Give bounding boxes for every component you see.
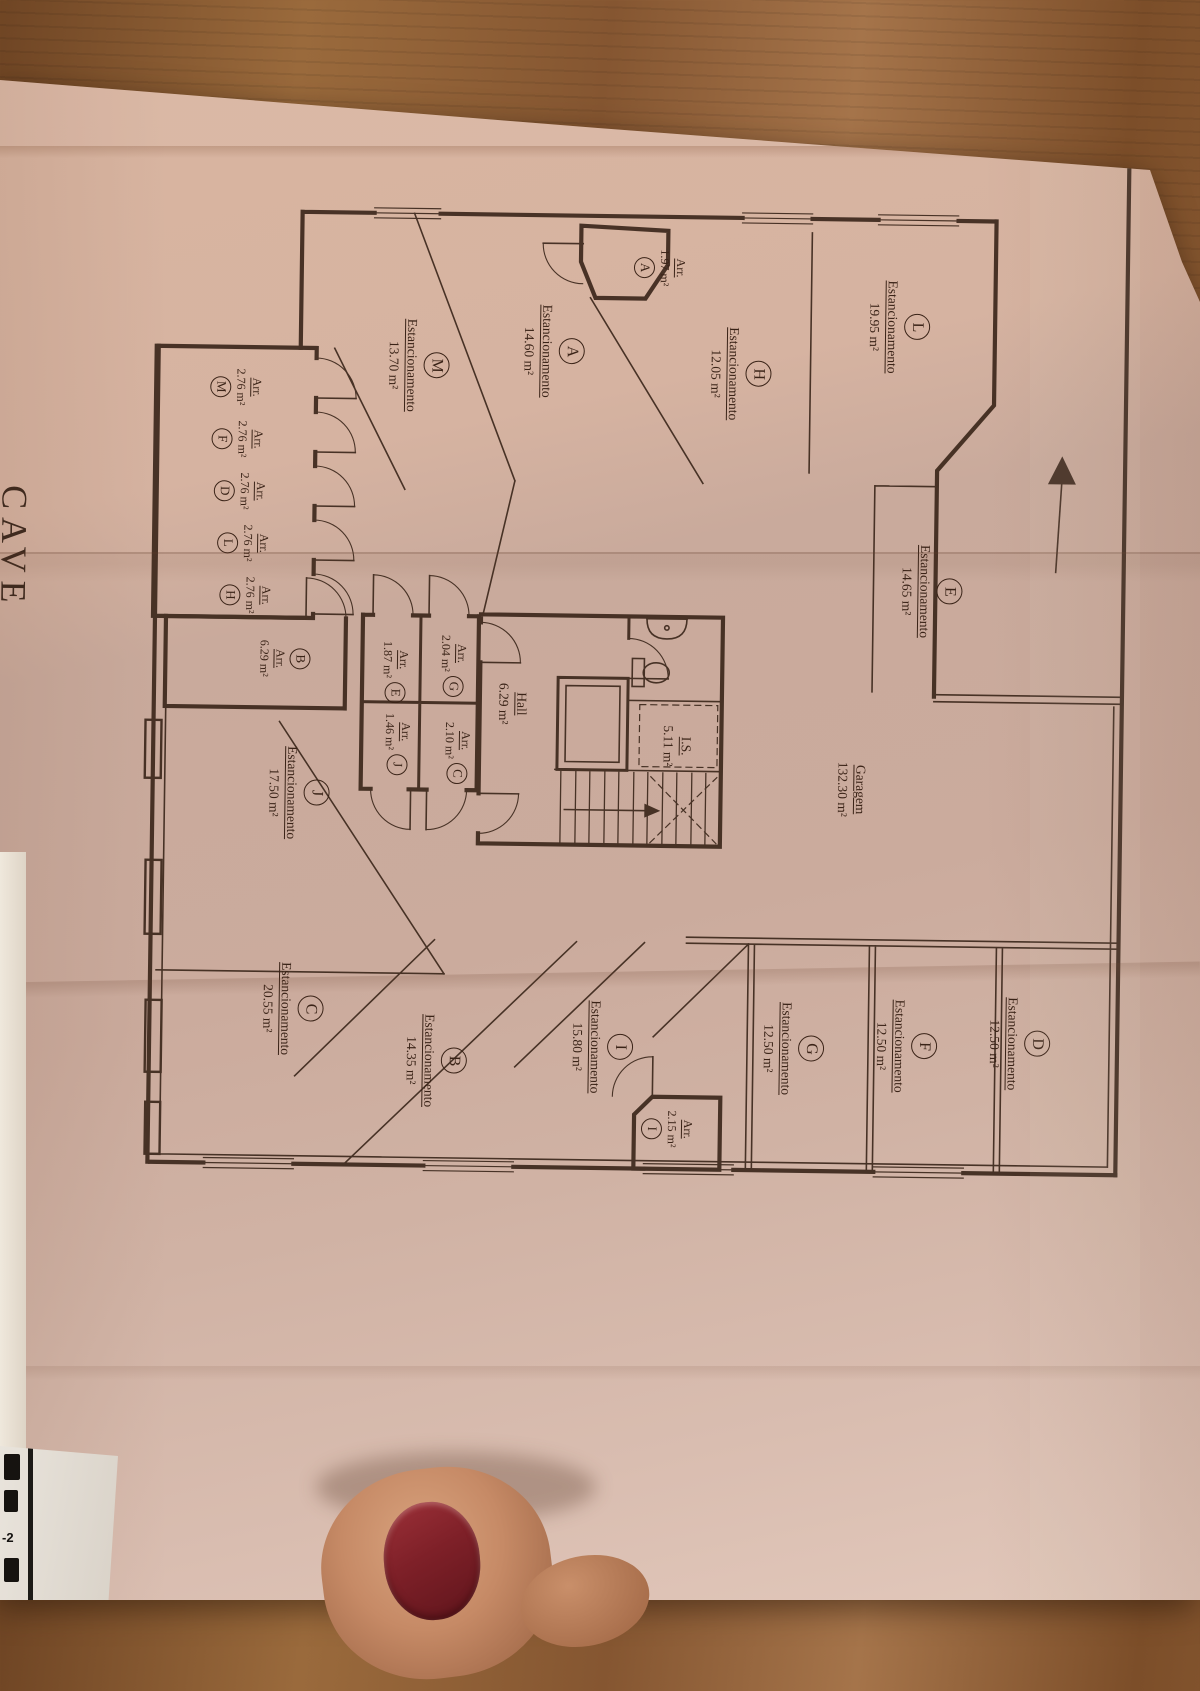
parking-area: 12.50 m²: [873, 1022, 891, 1071]
storage-label-A: Arr.1.97 m²A: [634, 249, 689, 287]
photo-of-floorplan: { "document": { "title": "CAVE", "underl…: [0, 0, 1200, 1600]
storage-letter-I: I: [641, 1118, 662, 1139]
storage-letter-M: M: [210, 376, 231, 397]
storage-word: Arr.: [258, 586, 274, 605]
storage-letter-G: G: [442, 676, 463, 697]
parking-letter-F: F: [911, 1033, 937, 1059]
floorplan-svg: [0, 0, 1200, 1608]
parking-area: 12.50 m²: [986, 1019, 1004, 1068]
storage-area: 1.87 m²: [380, 641, 396, 678]
parking-word: Estancionamento: [1003, 997, 1022, 1090]
parking-word: Estancionamento: [890, 1000, 909, 1093]
parking-label-G: GEstancionamento12.50 m²: [759, 1002, 824, 1096]
parking-area: 17.50 m²: [265, 768, 283, 817]
parking-label-A: AEstancionamento14.60 m²: [520, 304, 585, 398]
storage-word: Arr.: [453, 644, 469, 663]
storage-text: Arr.1.87 m²: [380, 641, 412, 678]
parking-word: Estancionamento: [282, 746, 301, 839]
paper-sheet-shadow: CAVE LEstancionamento19.95 m²HEstanciona…: [0, 0, 1200, 1600]
storage-label-D: Arr.2.76 m²D: [213, 472, 268, 510]
parking-label-F: FEstancionamento12.50 m²: [872, 999, 937, 1093]
parking-letter-E: E: [936, 579, 962, 605]
parking-label-I: IEstancionamento15.80 m²: [568, 1000, 633, 1094]
parking-word: Estancionamento: [883, 280, 902, 373]
plan-labels: CAVE LEstancionamento19.95 m²HEstanciona…: [10, 0, 1200, 8]
parking-letter-G: G: [798, 1036, 824, 1062]
parking-letter-J: J: [303, 780, 329, 806]
storage-word: Arr.: [672, 258, 688, 277]
storage-text: Arr.1.46 m²: [382, 713, 414, 750]
storage-letter-L: L: [217, 532, 238, 553]
storage-letter-J: J: [386, 754, 407, 775]
parking-label-C: CEstancionamento20.55 m²: [259, 962, 324, 1056]
parking-letter-B: B: [441, 1048, 467, 1074]
ramp-arrow: [1047, 456, 1077, 572]
parking-label-L: LEstancionamento19.95 m²: [865, 280, 930, 374]
parking-area: 12.05 m²: [707, 349, 725, 398]
storage-word: Arr.: [249, 378, 265, 397]
floorplan-drawing: CAVE LEstancionamento19.95 m²HEstanciona…: [0, 0, 1200, 1608]
storage-area: 2.76 m²: [233, 368, 249, 405]
storage-letter-A: A: [634, 257, 655, 278]
parking-word: Estancionamento: [915, 545, 934, 638]
storage-label-C: Arr.2.10 m²C: [441, 722, 473, 784]
underlying-document-border: [28, 1446, 33, 1600]
storage-label-H: Arr.2.76 m²H: [219, 576, 274, 614]
parking-area: 14.60 m²: [520, 327, 538, 376]
truncated-glyph: [4, 1454, 20, 1480]
storage-word: Arr.: [679, 1120, 695, 1139]
parking-word: Estancionamento: [276, 962, 295, 1055]
storage-word: Arr.: [395, 650, 411, 669]
parking-area: 14.35 m²: [402, 1036, 420, 1085]
parking-area: 12.50 m²: [760, 1024, 778, 1073]
storage-letter-B: B: [289, 648, 310, 669]
parking-area: 15.80 m²: [569, 1022, 587, 1071]
parking-label-J: JEstancionamento17.50 m²: [265, 746, 330, 840]
storage-area: 1.97 m²: [657, 249, 673, 286]
parking-word: Estancionamento: [586, 1000, 605, 1093]
toilet-icon: [632, 658, 669, 687]
storage-word: Arr.: [255, 534, 271, 553]
parking-area: 13.70 m²: [385, 341, 403, 390]
room-label-garagem: Garagem132.30 m²: [834, 762, 870, 818]
parking-label-E: EEstancionamento14.65 m²: [898, 545, 963, 639]
room-label-is: I.S.5.11 m²: [659, 725, 695, 767]
parking-word: Estancionamento: [402, 319, 421, 412]
parking-word: Estancionamento: [777, 1002, 796, 1095]
underlay-text-fragment: -2: [2, 1530, 14, 1545]
parking-word: Estancionamento: [420, 1014, 439, 1107]
storage-area: 2.04 m²: [438, 635, 454, 672]
parking-area: 19.95 m²: [866, 303, 884, 352]
storage-text: Arr.2.10 m²: [441, 722, 473, 759]
storage-word: Arr.: [272, 649, 288, 668]
stairs-arrow: [564, 803, 660, 818]
storage-word: Arr.: [397, 722, 413, 741]
parking-letter-L: L: [904, 314, 930, 340]
storage-letter-E: E: [384, 682, 405, 703]
storage-label-L: Arr.2.76 m²L: [217, 524, 272, 562]
underlying-sheet-edge: [0, 852, 26, 1452]
storage-area: 2.76 m²: [240, 524, 256, 561]
parking-letter-M: M: [423, 352, 449, 378]
parking-label-D: DEstancionamento12.50 m²: [985, 997, 1050, 1091]
storage-area: 1.46 m²: [382, 713, 398, 750]
parking-letter-H: H: [745, 361, 771, 387]
parking-area: 20.55 m²: [259, 984, 277, 1033]
floorplan-paper-sheet: CAVE LEstancionamento19.95 m²HEstanciona…: [0, 0, 1200, 1600]
storage-area: 2.76 m²: [242, 577, 258, 614]
room-name: Hall: [513, 692, 531, 715]
storage-letter-H: H: [219, 584, 240, 605]
parking-word: Estancionamento: [538, 305, 557, 398]
storage-word: Arr.: [252, 482, 268, 501]
truncated-glyph: [4, 1490, 18, 1512]
storage-label-I: Arr.2.15 m²I: [641, 1110, 696, 1148]
storage-word: Arr.: [250, 430, 266, 449]
storage-word: Arr.: [457, 731, 473, 750]
parking-letter-I: I: [607, 1034, 633, 1060]
storage-label-F: Arr.2.76 m²F: [211, 420, 266, 458]
parking-label-H: HEstancionamento12.05 m²: [707, 327, 772, 421]
storage-label-J: Arr.1.46 m²J: [381, 713, 413, 775]
underlying-document-corner: -2: [0, 1446, 118, 1600]
parking-label-M: MEstancionamento13.70 m²: [385, 318, 450, 412]
truncated-glyph: [4, 1558, 19, 1582]
storage-area: 2.76 m²: [236, 472, 252, 509]
parking-area: 14.65 m²: [898, 567, 916, 616]
storage-area: 6.29 m²: [256, 640, 272, 677]
page-title: CAVE: [0, 485, 36, 611]
room-area: 5.11 m²: [659, 725, 677, 766]
storage-letter-D: D: [214, 480, 235, 501]
storage-label-M: Arr.2.76 m²M: [210, 368, 265, 406]
room-name: Garagem: [851, 765, 869, 815]
storage-area: 2.76 m²: [234, 420, 250, 457]
storage-label-G: Arr.2.04 m²G: [437, 635, 469, 697]
room-area: 6.29 m²: [495, 683, 513, 725]
storage-area: 2.10 m²: [441, 722, 457, 759]
room-area: 132.30 m²: [834, 762, 852, 817]
storage-text: Arr.2.04 m²: [438, 635, 470, 672]
parking-letter-A: A: [559, 338, 585, 364]
storage-label-B: BArr.6.29 m²: [256, 640, 311, 678]
sink-icon: [647, 619, 687, 640]
storage-letter-F: F: [211, 428, 232, 449]
room-name: I.S.: [677, 737, 695, 756]
room-label-hall: Hall6.29 m²: [495, 683, 531, 725]
parking-letter-D: D: [1024, 1031, 1050, 1057]
storage-letter-C: C: [446, 763, 467, 784]
storage-label-E: Arr.1.87 m²E: [379, 641, 411, 703]
storage-area: 2.15 m²: [664, 1110, 680, 1147]
parking-letter-C: C: [297, 996, 323, 1022]
parking-label-B: BEstancionamento14.35 m²: [402, 1014, 467, 1108]
parking-word: Estancionamento: [724, 327, 743, 420]
